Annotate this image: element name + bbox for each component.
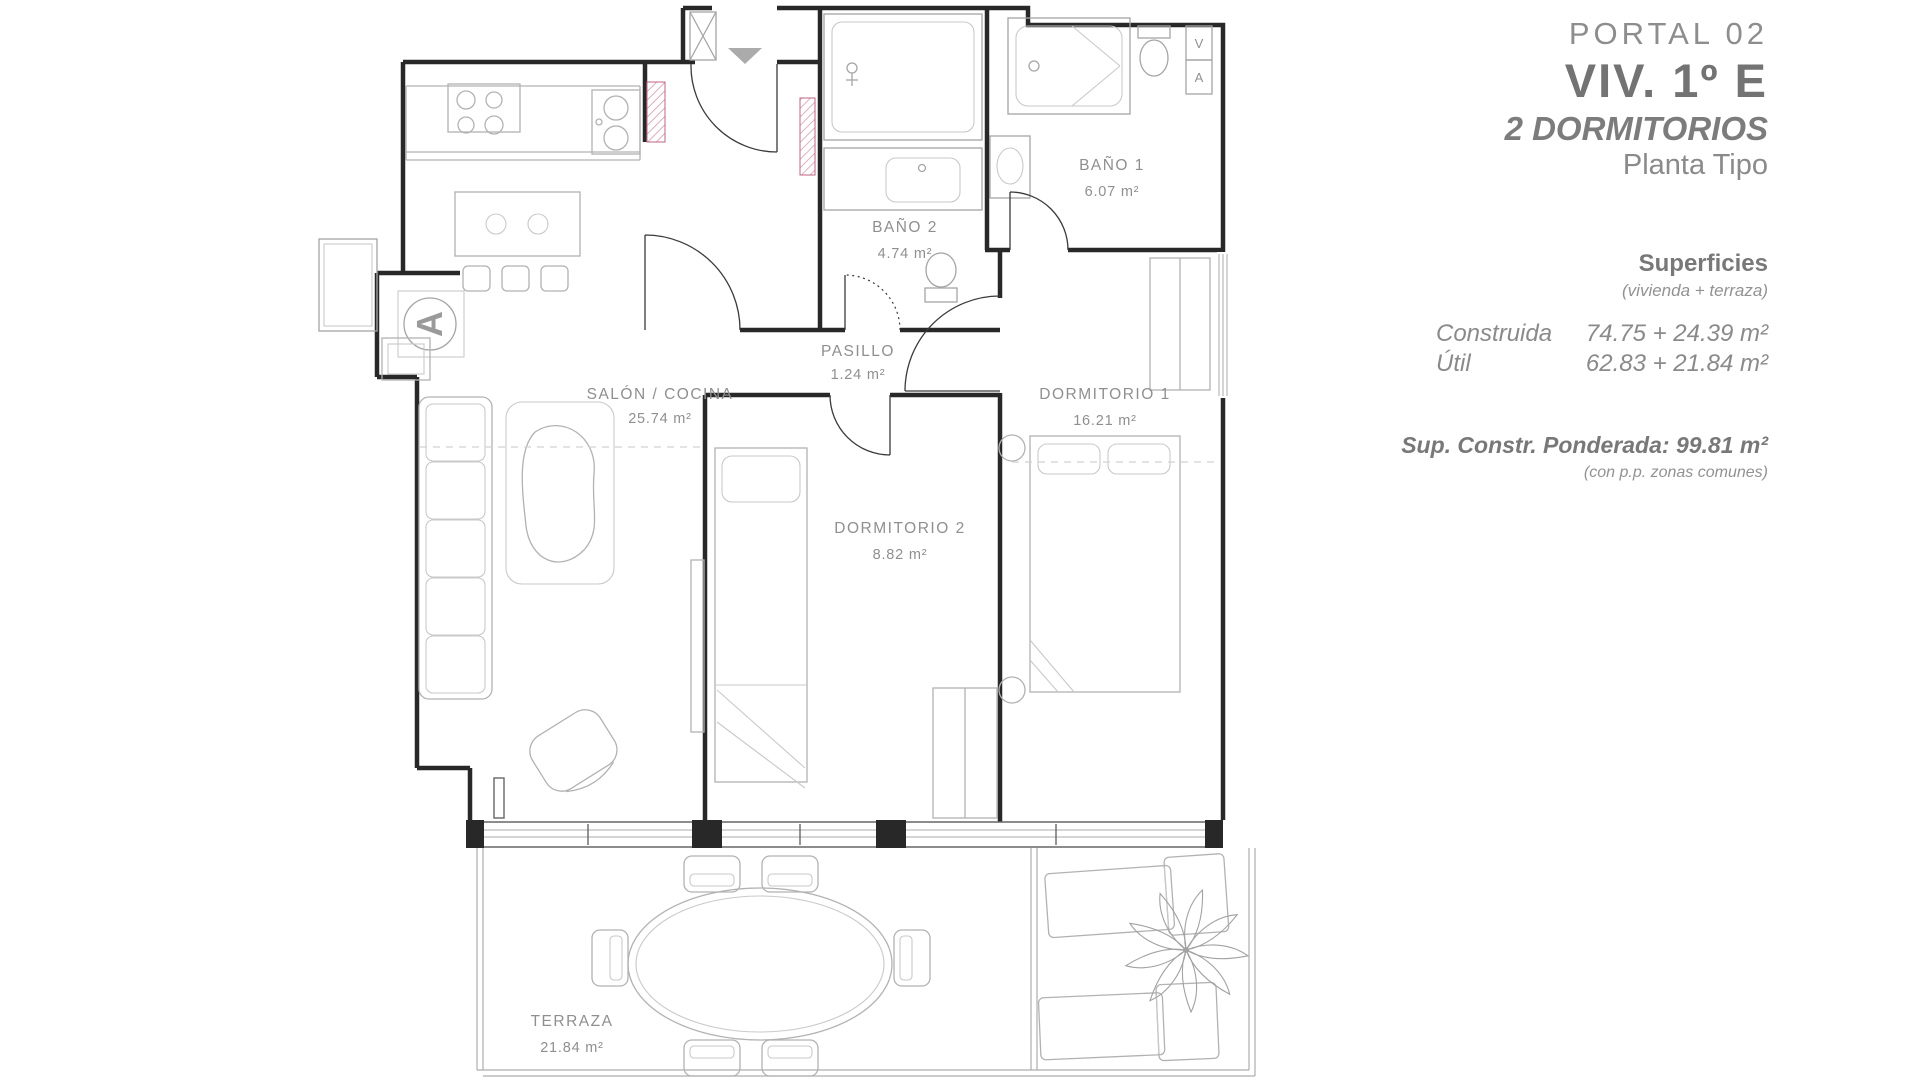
portal-title: PORTAL 02 [1569,16,1768,52]
surface-row-value: 74.75 + 24.39 m² [1586,320,1768,348]
bedroom1-door [905,296,1000,391]
bathroom2-shower [824,14,982,140]
room-label-salon: SALÓN / COCINA [587,386,734,403]
bedroom2-wardrobe [933,688,997,818]
floor-plan-sheet: A [0,0,1920,1080]
room-labels: BAÑO 1 6.07 m² BAÑO 2 4.74 m² PASILLO 1.… [531,157,1171,1056]
surface-row-util: Útil 62.83 + 21.84 m² [1436,350,1768,378]
surfaces-heading: Superficies [1639,250,1768,278]
sun-lounger-2 [1038,982,1219,1066]
room-area-salon: 25.74 m² [628,411,692,427]
shaft-x-box [690,12,716,60]
room-label-dorm2: DORMITORIO 2 [834,520,965,537]
sofa [419,397,492,699]
room-area-dorm2: 8.82 m² [873,547,928,563]
section-marker-a: A [398,291,464,357]
surfaces-subheading: (vivienda + terraza) [1622,281,1768,301]
entrance-door [691,64,777,152]
room-label-terraza: TERRAZA [531,1013,614,1030]
room-area-terraza: 21.84 m² [540,1040,604,1056]
room-label-bano2: BAÑO 2 [872,219,938,236]
surface-row-label: Construida [1436,320,1552,348]
bathroom1-door [1010,192,1068,250]
unit-title: VIV. 1º E [1565,53,1768,108]
bathroom1-sink [990,136,1030,198]
surface-row-construida: Construida 74.75 + 24.39 m² [1436,320,1768,348]
entrance-arrow-icon [728,48,762,64]
left-bump-out [319,239,377,331]
kitchen-counter [406,84,640,160]
surface-row-label: Útil [1436,350,1471,378]
surface-row-value: 62.83 + 21.84 m² [1586,350,1768,378]
bedroom2-bed [715,448,807,788]
armchair [523,703,627,804]
bathroom2-sink [824,148,982,210]
room-area-pasillo: 1.24 m² [831,367,886,383]
weighted-surface-note: (con p.p. zonas comunes) [1584,464,1768,482]
title-block: PORTAL 02 VIV. 1º E 2 DORMITORIOS Planta… [1128,0,1768,520]
appliance-box-inner [388,344,424,374]
bedroom2-door [830,395,890,455]
section-marker-letter: A [409,311,450,337]
kitchen-island [455,192,580,291]
terrace-table [592,856,930,1076]
bathroom2-door [845,275,900,330]
room-label-pasillo: PASILLO [821,343,895,360]
bedrooms-subtitle: 2 DORMITORIOS [1505,110,1768,148]
weighted-surface: Sup. Constr. Ponderada: 99.81 m² [1401,432,1768,459]
floor-type-subtitle: Planta Tipo [1623,149,1768,182]
tv-bench [691,560,704,732]
bathroom1-bathtub [1008,18,1130,114]
room-area-bano2: 4.74 m² [878,246,933,262]
shaft-hatch-right [800,98,815,175]
salon-door [645,235,740,330]
rug [506,402,614,584]
shaft-hatch-left [647,82,665,142]
